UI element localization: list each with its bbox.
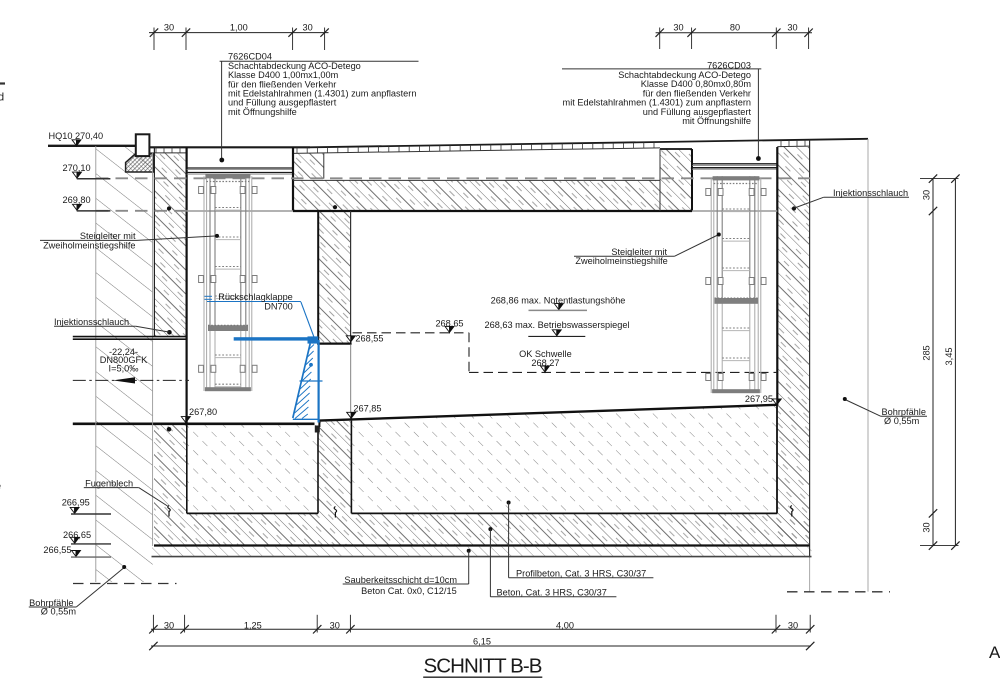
svg-text:HQ10 270,40: HQ10 270,40 <box>49 131 104 141</box>
svg-text:30: 30 <box>788 620 798 630</box>
svg-text:267,95: 267,95 <box>745 394 773 404</box>
svg-text:Zweiholmeinstiegshilfe: Zweiholmeinstiegshilfe <box>575 256 667 266</box>
svg-text:mit Öffnungshilfe: mit Öffnungshilfe <box>682 116 751 126</box>
svg-text:30: 30 <box>302 22 312 32</box>
svg-text:6,15: 6,15 <box>473 636 491 646</box>
svg-text:268,63 max. Betriebswasserspie: 268,63 max. Betriebswasserspiegel <box>484 320 629 330</box>
svg-text:mit Öffnungshilfe: mit Öffnungshilfe <box>228 107 297 117</box>
svg-text:266,55: 266,55 <box>43 545 71 555</box>
svg-text:Beton, Cat. 3 HRS, C30/37: Beton, Cat. 3 HRS, C30/37 <box>497 587 607 597</box>
svg-text:80: 80 <box>730 22 740 32</box>
svg-text:1,00: 1,00 <box>230 22 248 32</box>
svg-text:266,95: 266,95 <box>62 498 90 508</box>
svg-text:Beton Cat. 0x0, C12/15: Beton Cat. 0x0, C12/15 <box>361 586 457 596</box>
svg-text:30: 30 <box>673 22 683 32</box>
svg-text:Fugenblech: Fugenblech <box>85 478 133 488</box>
svg-text:3,45: 3,45 <box>944 348 954 366</box>
svg-text:30: 30 <box>922 190 932 200</box>
svg-text:268,55: 268,55 <box>355 333 383 343</box>
svg-text:Ø 0,55m: Ø 0,55m <box>884 416 920 426</box>
svg-text:SCHNITT B-B: SCHNITT B-B <box>424 655 542 678</box>
svg-text:30: 30 <box>164 620 174 630</box>
svg-text:267,80: 267,80 <box>189 407 217 417</box>
svg-text:285: 285 <box>922 345 932 360</box>
svg-text:A: A <box>989 643 1000 662</box>
svg-text:30: 30 <box>330 620 340 630</box>
svg-text:267,85: 267,85 <box>353 403 381 413</box>
svg-text:Profilbeton, Cat. 3 HRS, C30/3: Profilbeton, Cat. 3 HRS, C30/37 <box>516 568 646 578</box>
svg-text:Ø 0,55m: Ø 0,55m <box>41 607 77 617</box>
svg-text:1,25: 1,25 <box>244 620 262 630</box>
svg-text:Injektionsschlauch: Injektionsschlauch <box>54 317 129 327</box>
svg-text:4,00: 4,00 <box>556 620 574 630</box>
svg-text:30: 30 <box>922 522 932 532</box>
svg-text:Sauberkeitsschicht d=10cm: Sauberkeitsschicht d=10cm <box>344 575 457 585</box>
svg-text:Injektionsschlauch: Injektionsschlauch <box>833 188 908 198</box>
svg-text:d: d <box>0 92 4 104</box>
svg-text:30: 30 <box>164 22 174 32</box>
svg-text:269,80: 269,80 <box>63 195 91 205</box>
svg-text:I=5,0‰: I=5,0‰ <box>109 363 139 373</box>
svg-text:e: e <box>0 481 1 491</box>
svg-text:DN700: DN700 <box>264 302 293 312</box>
svg-text:Zweiholmeinstiegshilfe: Zweiholmeinstiegshilfe <box>43 240 135 250</box>
svg-text:30: 30 <box>787 22 797 32</box>
